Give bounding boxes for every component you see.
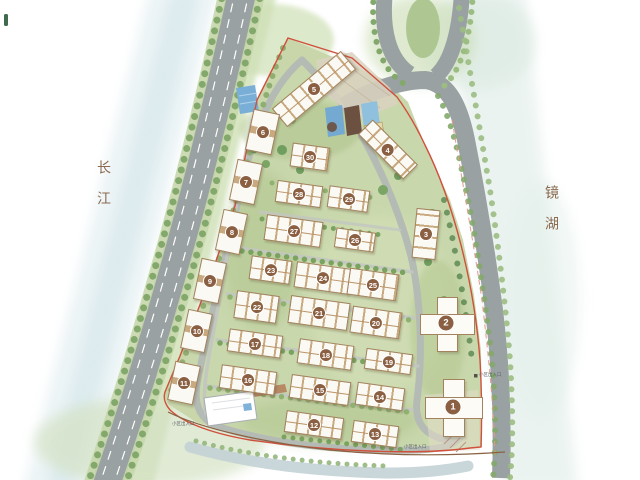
building-19[interactable]: 19 — [363, 347, 412, 374]
building-number-badge: 14 — [373, 389, 387, 403]
building-6[interactable]: 6 — [244, 109, 279, 156]
site-plan-map: 1234567891011121314151617181920212223242… — [0, 0, 640, 480]
building-number-badge: 17 — [248, 336, 262, 350]
building-number-badge: 11 — [177, 376, 191, 390]
building-23[interactable]: 23 — [248, 255, 292, 284]
building-9[interactable]: 9 — [193, 258, 227, 304]
building-3[interactable]: 3 — [411, 208, 440, 260]
building-number-badge: 7 — [239, 175, 253, 189]
building-number-badge: 10 — [189, 324, 203, 338]
building-5[interactable]: 5 — [272, 51, 356, 127]
entrance-label-left: 小区出入口 — [172, 421, 195, 427]
building-28[interactable]: 28 — [275, 180, 324, 208]
building-24[interactable]: 24 — [293, 261, 351, 294]
building-15[interactable]: 15 — [289, 374, 352, 406]
building-number-badge: 28 — [292, 187, 306, 201]
building-number-badge: 19 — [381, 354, 395, 368]
building-13[interactable]: 13 — [351, 420, 400, 448]
building-number-badge: 3 — [419, 227, 433, 241]
building-22[interactable]: 22 — [233, 290, 279, 324]
building-number-badge: 29 — [341, 192, 355, 206]
building-number-badge: 8 — [224, 225, 238, 239]
entrance-label-bottom: 小区出入口 — [404, 444, 427, 450]
lake-label: 镜湖 — [540, 185, 560, 247]
building-number-badge: 13 — [368, 427, 382, 441]
building-number-badge: 6 — [255, 125, 269, 139]
building-number-badge: 15 — [313, 383, 327, 397]
river-label: 长江 — [92, 160, 112, 222]
building-26[interactable]: 26 — [334, 227, 376, 252]
building-number-badge: 30 — [303, 150, 317, 164]
building-number-badge: 24 — [315, 271, 329, 285]
building-8[interactable]: 8 — [214, 209, 247, 255]
building-18[interactable]: 18 — [296, 338, 354, 370]
building-1[interactable]: 1 — [427, 381, 479, 433]
building-number-badge: 21 — [312, 306, 326, 320]
building-25[interactable]: 25 — [346, 267, 399, 301]
building-number-badge: 16 — [241, 373, 255, 387]
building-30[interactable]: 30 — [290, 142, 331, 171]
building-20[interactable]: 20 — [349, 305, 402, 339]
building-7[interactable]: 7 — [229, 159, 263, 205]
building-29[interactable]: 29 — [326, 185, 370, 212]
building-11[interactable]: 11 — [167, 361, 201, 406]
building-number-badge: 22 — [249, 300, 263, 314]
building-16[interactable]: 16 — [219, 364, 278, 396]
building-number-badge: 1 — [445, 399, 462, 416]
building-number-badge: 5 — [307, 82, 321, 96]
building-number-badge: 20 — [369, 315, 383, 329]
building-number-badge: 4 — [381, 142, 395, 156]
building-21[interactable]: 21 — [287, 295, 350, 331]
building-number-badge: 27 — [286, 224, 300, 238]
building-2[interactable]: 2 — [421, 298, 471, 348]
building-number-badge: 2 — [438, 315, 455, 332]
building-number-badge: 12 — [307, 418, 321, 432]
building-14[interactable]: 14 — [355, 381, 406, 410]
building-number-badge: 25 — [366, 277, 380, 291]
building-number-badge: 9 — [203, 274, 217, 288]
building-10[interactable]: 10 — [180, 309, 213, 353]
entrance-label-right: 小区出入口 — [479, 372, 502, 378]
building-27[interactable]: 27 — [263, 214, 323, 248]
building-17[interactable]: 17 — [227, 328, 284, 358]
building-4[interactable]: 4 — [358, 119, 418, 179]
building-number-badge: 26 — [348, 233, 362, 247]
building-12[interactable]: 12 — [284, 410, 344, 440]
building-number-badge: 23 — [263, 263, 277, 277]
building-number-badge: 18 — [318, 347, 332, 361]
